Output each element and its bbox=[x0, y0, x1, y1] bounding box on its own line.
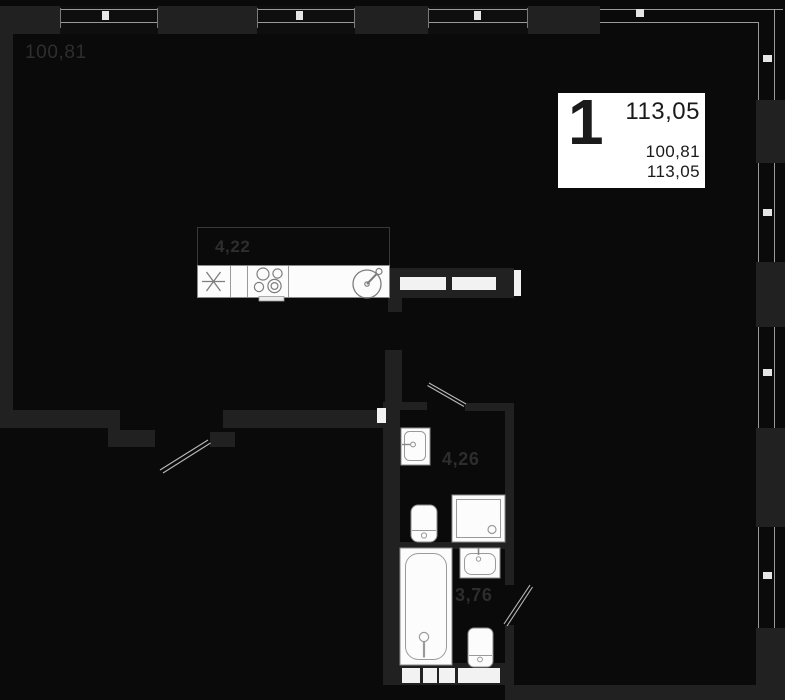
entrance-door bbox=[160, 440, 211, 473]
washbasin-2 bbox=[460, 548, 500, 578]
window-glazing-top bbox=[60, 8, 528, 28]
toilet-2 bbox=[468, 628, 493, 667]
bathroom-door bbox=[428, 383, 467, 407]
floorplan-canvas: 100,81 4,22 4,26 3,76 1 113,05 100,81 11… bbox=[0, 0, 785, 700]
shower-tray bbox=[452, 495, 505, 542]
washbasin bbox=[401, 428, 430, 465]
bathroom-2-door bbox=[504, 585, 533, 626]
room-area-label: 100,81 bbox=[25, 42, 87, 64]
bathtub bbox=[400, 548, 452, 665]
apartment-area-main: 113,05 bbox=[625, 98, 700, 126]
apartment-area-total: 113,05 bbox=[647, 162, 700, 182]
kitchen-area-label: 4,22 bbox=[215, 237, 251, 257]
bathroom-area-label: 4,26 bbox=[442, 449, 479, 470]
apartment-area-living: 100,81 bbox=[646, 142, 700, 162]
kitchen-counter bbox=[198, 266, 390, 298]
bathroom2-area-label: 3,76 bbox=[455, 585, 492, 606]
apartment-rooms-count: 1 bbox=[568, 90, 604, 154]
apartment-info-card[interactable]: 1 113,05 100,81 113,05 bbox=[558, 93, 705, 188]
toilet bbox=[411, 505, 437, 542]
